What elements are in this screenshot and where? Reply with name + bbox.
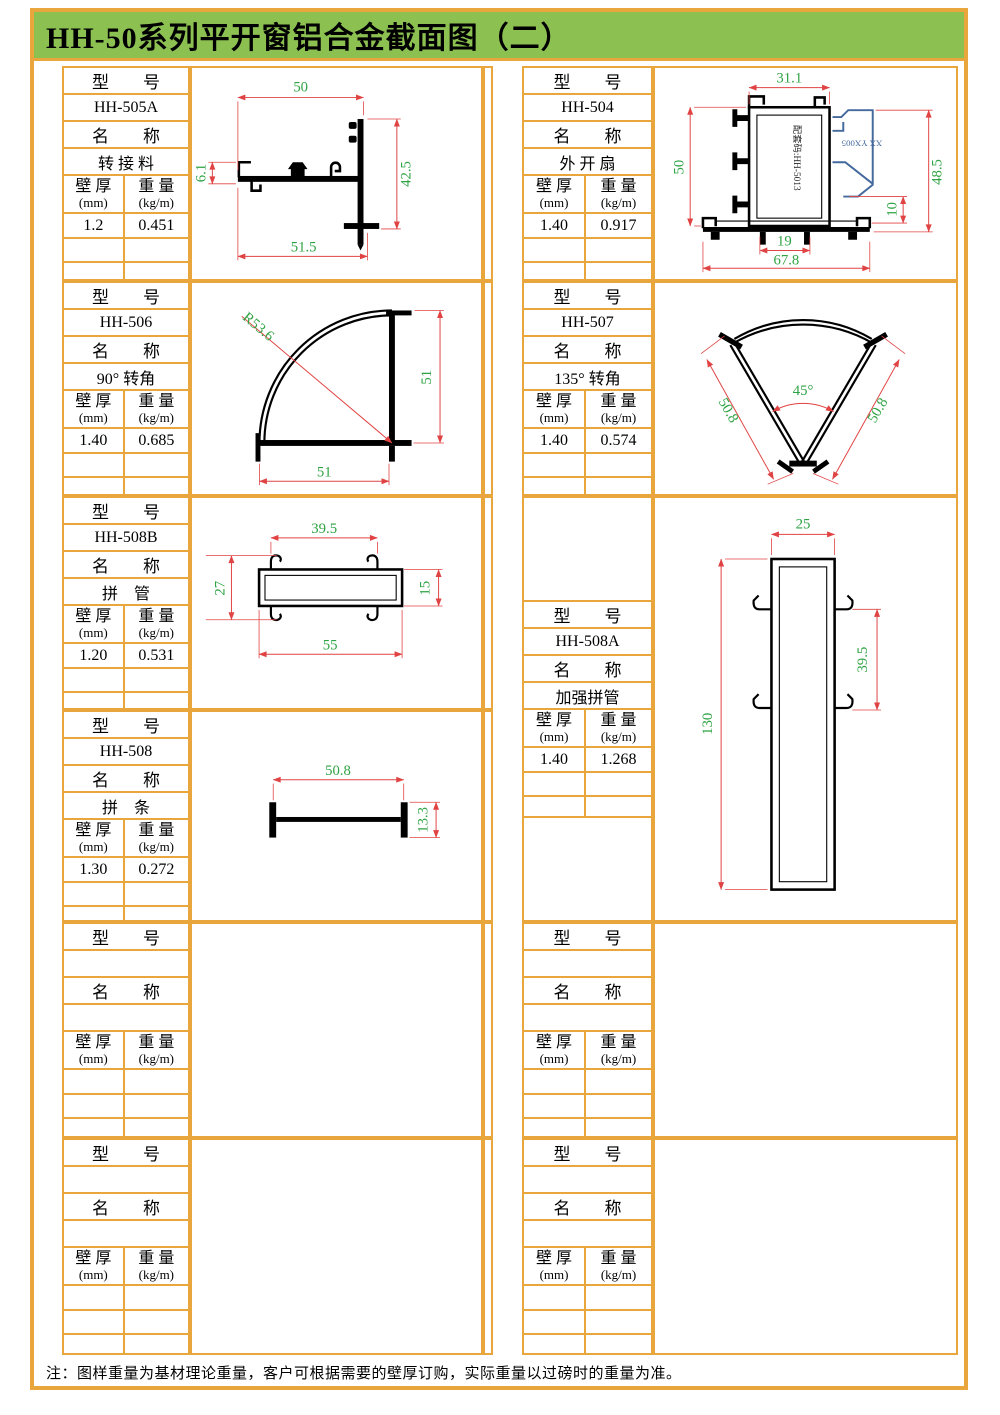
dim-label: 31.1 xyxy=(776,71,802,87)
dim-label: 51 xyxy=(317,464,332,480)
spacer-cell xyxy=(483,496,493,710)
dim-label: 6.1 xyxy=(193,164,209,182)
name-value: 拼 管 xyxy=(64,579,188,604)
empty-cell xyxy=(64,478,123,494)
dim-label: 27 xyxy=(213,581,229,596)
empty-cell xyxy=(586,1335,651,1353)
weight-value: 0.917 xyxy=(586,214,651,237)
name-label: 名 称 xyxy=(64,978,188,1003)
spec-table-hh504: 型 号 HH-504 名 称 外 开 扇 壁 厚(mm) 重 量(kg/m) 1… xyxy=(522,66,653,281)
profile-drawing-hh508: 50.8 13.3 xyxy=(192,712,481,920)
thickness-value xyxy=(64,1286,123,1309)
name-value: 90° 转角 xyxy=(64,364,188,389)
name-label: 名 称 xyxy=(64,766,188,791)
empty-cell xyxy=(125,693,188,708)
thickness-label: 壁 厚(mm) xyxy=(64,1248,123,1284)
drawing-cell-hh508: 50.8 13.3 xyxy=(190,710,483,922)
dim-label: R53.6 xyxy=(239,309,277,344)
spacer-cell xyxy=(483,922,493,1138)
empty-cell xyxy=(125,239,188,261)
empty-cell xyxy=(125,478,188,494)
name-label: 名 称 xyxy=(524,978,651,1003)
name-label: 名 称 xyxy=(64,122,188,147)
model-value: HH-506 xyxy=(64,310,188,335)
blue-label-text: XX YX005 xyxy=(841,139,882,149)
empty-cell xyxy=(524,1095,584,1117)
empty-cell xyxy=(64,883,123,905)
model-label: 型 号 xyxy=(64,712,188,737)
weight-label: 重 量(kg/m) xyxy=(586,1032,651,1068)
dim-label: 39.5 xyxy=(311,521,337,537)
empty-cell xyxy=(524,1311,584,1333)
thickness-value: 1.30 xyxy=(64,858,123,881)
empty-cell xyxy=(64,263,123,279)
empty-cell xyxy=(586,454,651,476)
merged-column-hh508a: 型 号 HH-508A 名 称 加强拼管 壁 厚(mm) 重 量(kg/m) 1… xyxy=(522,496,653,922)
dim-label: 10 xyxy=(884,202,900,217)
model-label: 型 号 xyxy=(64,283,188,308)
profile-drawing-hh508b: 39.5 27 15 55 xyxy=(192,498,481,708)
empty-cell xyxy=(64,1335,123,1353)
name-value: 转 接 料 xyxy=(64,149,188,174)
weight-label: 重 量(kg/m) xyxy=(586,391,651,427)
name-label: 名 称 xyxy=(524,337,651,362)
weight-value: 0.531 xyxy=(125,644,188,667)
inner-code-text: 配套码:HH-5013 xyxy=(791,125,803,191)
model-label: 型 号 xyxy=(64,498,188,523)
empty-cell xyxy=(524,797,584,816)
model-value: HH-508 xyxy=(64,739,188,764)
empty-cell xyxy=(586,263,651,279)
blank-cell xyxy=(524,498,651,600)
dim-label: 39.5 xyxy=(855,647,871,673)
weight-label: 重 量(kg/m) xyxy=(125,176,188,212)
thickness-value xyxy=(524,1070,584,1093)
profile-drawing-hh507: 45° 50.8 50.8 xyxy=(655,283,956,494)
blank-cell xyxy=(524,818,651,920)
dim-label: 130 xyxy=(700,713,716,735)
weight-label: 重 量(kg/m) xyxy=(125,820,188,856)
model-label: 型 号 xyxy=(64,68,188,93)
page-title: HH-50系列平开窗铝合金截面图（二） xyxy=(46,13,572,57)
dim-label: 13.3 xyxy=(415,807,431,833)
thickness-label: 壁 厚(mm) xyxy=(64,1032,123,1068)
dim-label: 50 xyxy=(671,160,687,175)
dim-label: 19 xyxy=(777,234,792,250)
dim-label: 50 xyxy=(293,80,308,96)
empty-drawing-cell xyxy=(653,1138,958,1355)
thickness-value xyxy=(524,1286,584,1309)
name-label: 名 称 xyxy=(524,1194,651,1219)
spec-table-empty: 型 号 名 称 壁 厚(mm) 重 量(kg/m) xyxy=(522,922,653,1138)
name-label: 名 称 xyxy=(64,552,188,577)
empty-cell xyxy=(64,239,123,261)
weight-value xyxy=(125,1286,188,1309)
empty-cell xyxy=(586,1119,651,1136)
thickness-label: 壁 厚(mm) xyxy=(64,606,123,642)
empty-cell xyxy=(64,1119,123,1136)
title-bar: HH-50系列平开窗铝合金截面图（二） xyxy=(34,12,964,61)
empty-drawing-cell xyxy=(190,922,483,1138)
dim-label: 25 xyxy=(796,516,811,532)
empty-cell xyxy=(125,1311,188,1333)
model-value: HH-505A xyxy=(64,95,188,120)
model-label: 型 号 xyxy=(524,68,651,93)
thickness-value: 1.40 xyxy=(524,429,584,452)
weight-label: 重 量(kg/m) xyxy=(125,606,188,642)
drawing-cell-hh506: R53.6 51 51 xyxy=(190,281,483,496)
name-value xyxy=(64,1221,188,1246)
name-value: 加强拼管 xyxy=(524,683,651,708)
weight-value: 0.685 xyxy=(125,429,188,452)
empty-cell xyxy=(125,263,188,279)
empty-cell xyxy=(125,1119,188,1136)
spec-table-empty: 型 号 名 称 壁 厚(mm) 重 量(kg/m) xyxy=(62,922,190,1138)
model-label: 型 号 xyxy=(524,283,651,308)
weight-value xyxy=(586,1070,651,1093)
thickness-value: 1.2 xyxy=(64,214,123,237)
dim-label: 55 xyxy=(323,637,338,653)
spec-table-hh506: 型 号 HH-506 名 称 90° 转角 壁 厚(mm) 重 量(kg/m) … xyxy=(62,281,190,496)
empty-cell xyxy=(64,1311,123,1333)
name-label: 名 称 xyxy=(524,656,651,681)
empty-cell xyxy=(524,1119,584,1136)
name-label: 名 称 xyxy=(524,122,651,147)
model-value: HH-508B xyxy=(64,525,188,550)
dim-label: 50.8 xyxy=(715,395,742,425)
drawing-cell-hh507: 45° 50.8 50.8 xyxy=(653,281,958,496)
weight-value: 0.272 xyxy=(125,858,188,881)
thickness-value: 1.20 xyxy=(64,644,123,667)
drawing-cell-hh504: 配套码:HH-5013 XX YX005 31.1 50 48.5 10 19 … xyxy=(653,66,958,281)
empty-cell xyxy=(586,773,651,795)
model-value xyxy=(64,1167,188,1192)
name-value: 外 开 扇 xyxy=(524,149,651,174)
empty-cell xyxy=(125,907,188,920)
empty-cell xyxy=(586,1311,651,1333)
name-value xyxy=(524,1005,651,1030)
dim-label: 50.8 xyxy=(325,763,351,779)
weight-label: 重 量(kg/m) xyxy=(125,1032,188,1068)
empty-cell xyxy=(586,239,651,261)
model-value xyxy=(64,951,188,976)
empty-cell xyxy=(64,907,123,920)
model-value xyxy=(524,951,651,976)
empty-drawing-cell xyxy=(190,1138,483,1355)
drawing-cell-hh508b: 39.5 27 15 55 xyxy=(190,496,483,710)
model-value xyxy=(524,1167,651,1192)
drawing-cell-hh505a: 50 6.1 42.5 51.5 xyxy=(190,66,483,281)
thickness-label: 壁 厚(mm) xyxy=(524,391,584,427)
empty-cell xyxy=(125,1095,188,1117)
spacer-cell xyxy=(483,710,493,922)
dim-label: 48.5 xyxy=(929,159,945,185)
thickness-label: 壁 厚(mm) xyxy=(64,176,123,212)
empty-cell xyxy=(524,478,584,494)
weight-value: 0.451 xyxy=(125,214,188,237)
weight-value: 0.574 xyxy=(586,429,651,452)
dim-label: 51.5 xyxy=(291,240,317,256)
empty-cell xyxy=(125,454,188,476)
weight-value xyxy=(125,1070,188,1093)
empty-cell xyxy=(125,1335,188,1353)
name-value: 拼 条 xyxy=(64,793,188,818)
empty-cell xyxy=(524,239,584,261)
spec-table-hh508b: 型 号 HH-508B 名 称 拼 管 壁 厚(mm) 重 量(kg/m) 1.… xyxy=(62,496,190,710)
spacer-cell xyxy=(483,281,493,496)
name-value xyxy=(64,1005,188,1030)
weight-value: 1.268 xyxy=(586,748,651,771)
document-page: { "page": { "title": "HH-50系列平开窗铝合金截面图（二… xyxy=(0,0,1000,1415)
name-label: 名 称 xyxy=(64,1194,188,1219)
empty-cell xyxy=(586,1095,651,1117)
spec-table-empty: 型 号 名 称 壁 厚(mm) 重 量(kg/m) xyxy=(522,1138,653,1355)
empty-cell xyxy=(64,669,123,691)
name-label: 名 称 xyxy=(64,337,188,362)
thickness-label: 壁 厚(mm) xyxy=(524,176,584,212)
model-value: HH-508A xyxy=(524,629,651,654)
thickness-value xyxy=(64,1070,123,1093)
dim-label: 42.5 xyxy=(399,161,415,187)
thickness-label: 壁 厚(mm) xyxy=(64,820,123,856)
empty-cell xyxy=(524,773,584,795)
spec-table-hh508a: 型 号 HH-508A 名 称 加强拼管 壁 厚(mm) 重 量(kg/m) 1… xyxy=(524,600,651,818)
empty-cell xyxy=(125,669,188,691)
dim-label: 67.8 xyxy=(773,252,799,268)
thickness-value: 1.40 xyxy=(524,214,584,237)
profile-drawing-hh505a: 50 6.1 42.5 51.5 xyxy=(192,68,481,279)
dim-label: 15 xyxy=(418,581,434,596)
thickness-label: 壁 厚(mm) xyxy=(524,1248,584,1284)
thickness-value: 1.40 xyxy=(524,748,584,771)
profile-drawing-hh508a: 25 130 39.5 xyxy=(655,498,956,920)
empty-cell xyxy=(524,263,584,279)
empty-cell xyxy=(586,797,651,816)
dim-label: 45° xyxy=(793,383,814,399)
empty-cell xyxy=(586,478,651,494)
name-value: 135° 转角 xyxy=(524,364,651,389)
spec-table-hh507: 型 号 HH-507 名 称 135° 转角 壁 厚(mm) 重 量(kg/m)… xyxy=(522,281,653,496)
weight-label: 重 量(kg/m) xyxy=(586,176,651,212)
model-label: 型 号 xyxy=(64,1140,188,1165)
drawing-cell-hh508a: 25 130 39.5 xyxy=(653,496,958,922)
dim-label: 50.8 xyxy=(865,395,892,425)
weight-label: 重 量(kg/m) xyxy=(125,1248,188,1284)
weight-label: 重 量(kg/m) xyxy=(125,391,188,427)
name-value xyxy=(524,1221,651,1246)
empty-cell xyxy=(64,1095,123,1117)
weight-value xyxy=(586,1286,651,1309)
empty-drawing-cell xyxy=(653,922,958,1138)
footer-note: 注：图样重量为基材理论重量，客户可根据需要的壁厚订购，实际重量以过磅时的重量为准… xyxy=(46,1362,682,1383)
profile-drawing-hh504: 配套码:HH-5013 XX YX005 31.1 50 48.5 10 19 … xyxy=(655,68,956,279)
spec-table-hh505a: 型 号 HH-505A 名 称 转 接 料 壁 厚(mm) 重 量(kg/m) … xyxy=(62,66,190,281)
model-label: 型 号 xyxy=(524,1140,651,1165)
thickness-label: 壁 厚(mm) xyxy=(524,710,584,746)
spec-table-hh508: 型 号 HH-508 名 称 拼 条 壁 厚(mm) 重 量(kg/m) 1.3… xyxy=(62,710,190,922)
thickness-label: 壁 厚(mm) xyxy=(524,1032,584,1068)
profile-drawing-hh506: R53.6 51 51 xyxy=(192,283,481,494)
weight-label: 重 量(kg/m) xyxy=(586,710,651,746)
empty-cell xyxy=(524,1335,584,1353)
dim-label: 51 xyxy=(419,370,435,385)
spec-table-empty: 型 号 名 称 壁 厚(mm) 重 量(kg/m) xyxy=(62,1138,190,1355)
empty-cell xyxy=(125,883,188,905)
weight-label: 重 量(kg/m) xyxy=(586,1248,651,1284)
model-label: 型 号 xyxy=(64,924,188,949)
model-label: 型 号 xyxy=(524,924,651,949)
model-label: 型 号 xyxy=(524,602,651,627)
spacer-cell xyxy=(483,66,493,281)
empty-cell xyxy=(64,454,123,476)
model-value: HH-504 xyxy=(524,95,651,120)
thickness-label: 壁 厚(mm) xyxy=(64,391,123,427)
model-value: HH-507 xyxy=(524,310,651,335)
spacer-cell xyxy=(483,1138,493,1355)
empty-cell xyxy=(524,454,584,476)
empty-cell xyxy=(64,693,123,708)
thickness-value: 1.40 xyxy=(64,429,123,452)
